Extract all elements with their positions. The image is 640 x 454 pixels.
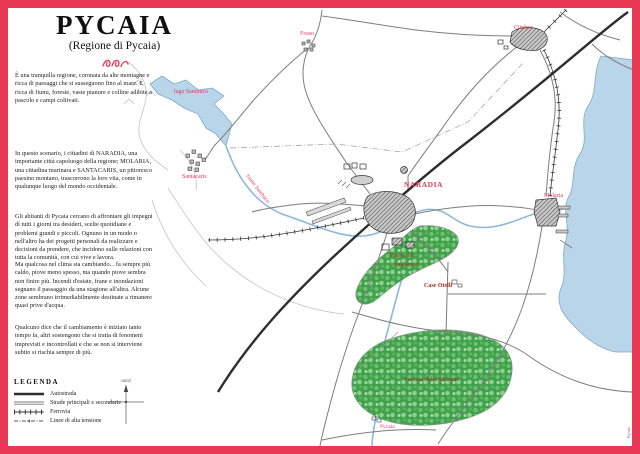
legend-item-motorway: Autostrada xyxy=(14,390,189,398)
title-block: PYCAIA (Regione di Pycaia) xyxy=(22,12,207,74)
compass-rose: nord xyxy=(104,374,148,428)
label-cimbro: Cimbro xyxy=(514,25,532,31)
motorway-line-sample xyxy=(14,390,44,398)
page-title: PYCAIA xyxy=(22,12,207,39)
label-pineta-2: Sughereto xyxy=(394,262,418,268)
label-foresta: Foresta delle Murene xyxy=(404,376,459,383)
legend: LEGENDA Autostrada Strade principali e s… xyxy=(14,378,189,426)
map-page: lago Sambuco fiume Sambuco Santacaris Fo… xyxy=(0,0,640,454)
legend-label: Ferrovia xyxy=(50,409,70,415)
label-molaria: Molaria xyxy=(544,193,563,199)
intro-paragraph-3: Gli abitanti di Pycaia cercano di affron… xyxy=(15,213,155,263)
legend-label: Linee di alta tensione xyxy=(50,418,101,424)
label-pycaia-point: Pycaia xyxy=(380,424,395,430)
legend-item-power-line: Linee di alta tensione xyxy=(14,417,189,425)
map-credit: Pycaia xyxy=(626,427,631,438)
label-naradia: NARADIA xyxy=(404,180,443,189)
label-lago-sambuco: lago Sambuco xyxy=(174,89,208,95)
intro-paragraph-5: Qualcuno dice che il cambiamento è inizi… xyxy=(15,324,155,357)
sea xyxy=(559,56,634,352)
legend-label: Autostrada xyxy=(50,391,76,397)
round-structure xyxy=(401,167,408,174)
airport xyxy=(306,198,351,224)
north-arrow-icon xyxy=(124,385,128,392)
intro-paragraph-2: In questo scenario, i cittadini di NARAD… xyxy=(15,150,155,191)
railway-line-sample xyxy=(14,408,44,416)
lake-sambuco xyxy=(150,76,232,146)
hamlet-case-otelli xyxy=(452,280,462,287)
compass-north-label: nord xyxy=(121,379,131,384)
power-line-sample xyxy=(14,417,44,425)
page-subtitle: (Regione di Pycaia) xyxy=(22,40,207,52)
legend-item-railway: Ferrovia xyxy=(14,408,189,416)
label-santacaris: Santacaris xyxy=(182,174,207,180)
intro-paragraph-1: È una tranquilla regione, coronata da al… xyxy=(15,72,155,105)
intro-paragraph-4: Ma qualcosa nel clima sta cambiando... f… xyxy=(15,261,155,311)
stadium xyxy=(351,176,373,185)
label-pineta-1: Pineta del xyxy=(390,253,414,259)
terrain-contours xyxy=(124,62,344,314)
power-lines xyxy=(230,62,524,152)
road-line-sample xyxy=(14,399,44,407)
forests xyxy=(352,226,512,426)
legend-item-roads: Strade principali e secondarie xyxy=(14,399,189,407)
label-case-otelli: Case Otelli xyxy=(424,283,452,289)
legend-heading: LEGENDA xyxy=(14,378,189,386)
label-fosso: Fosso xyxy=(300,31,314,37)
